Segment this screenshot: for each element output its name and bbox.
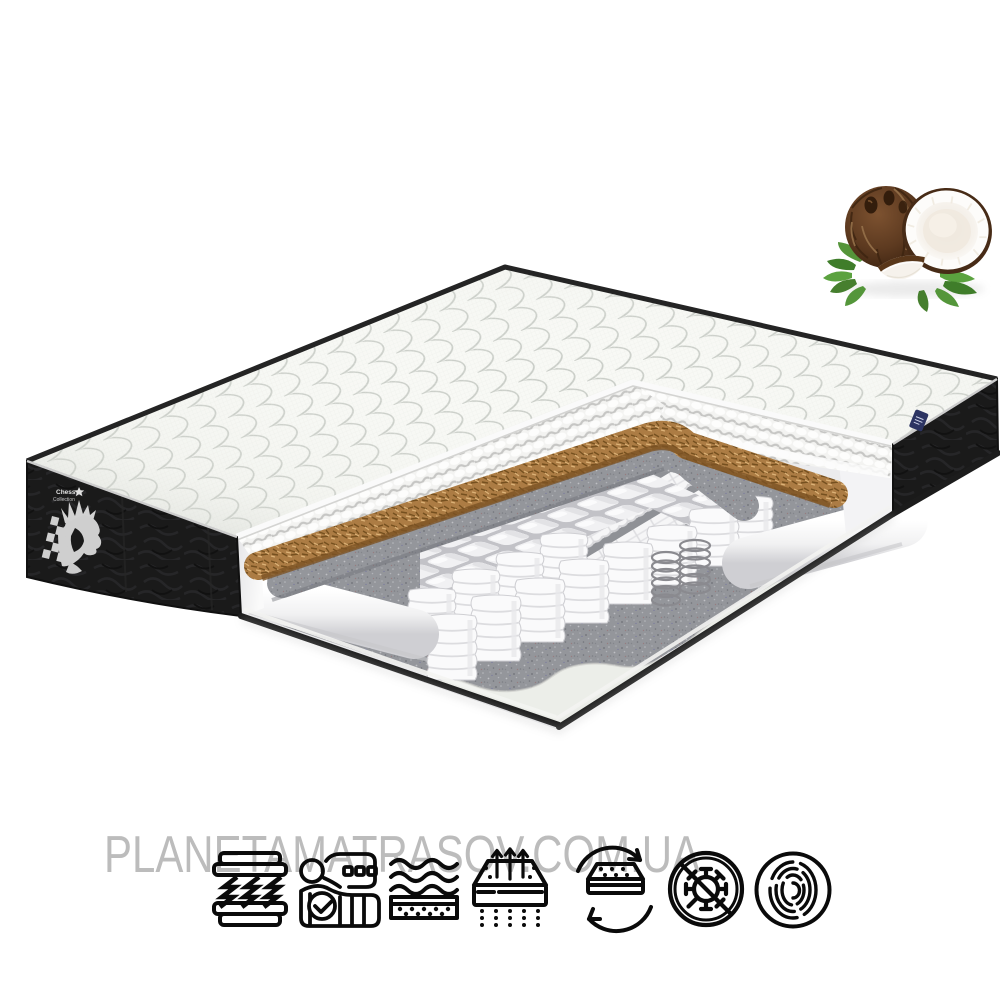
svg-text:Collection: Collection	[53, 497, 75, 503]
svg-text:Chess: Chess	[56, 489, 76, 496]
